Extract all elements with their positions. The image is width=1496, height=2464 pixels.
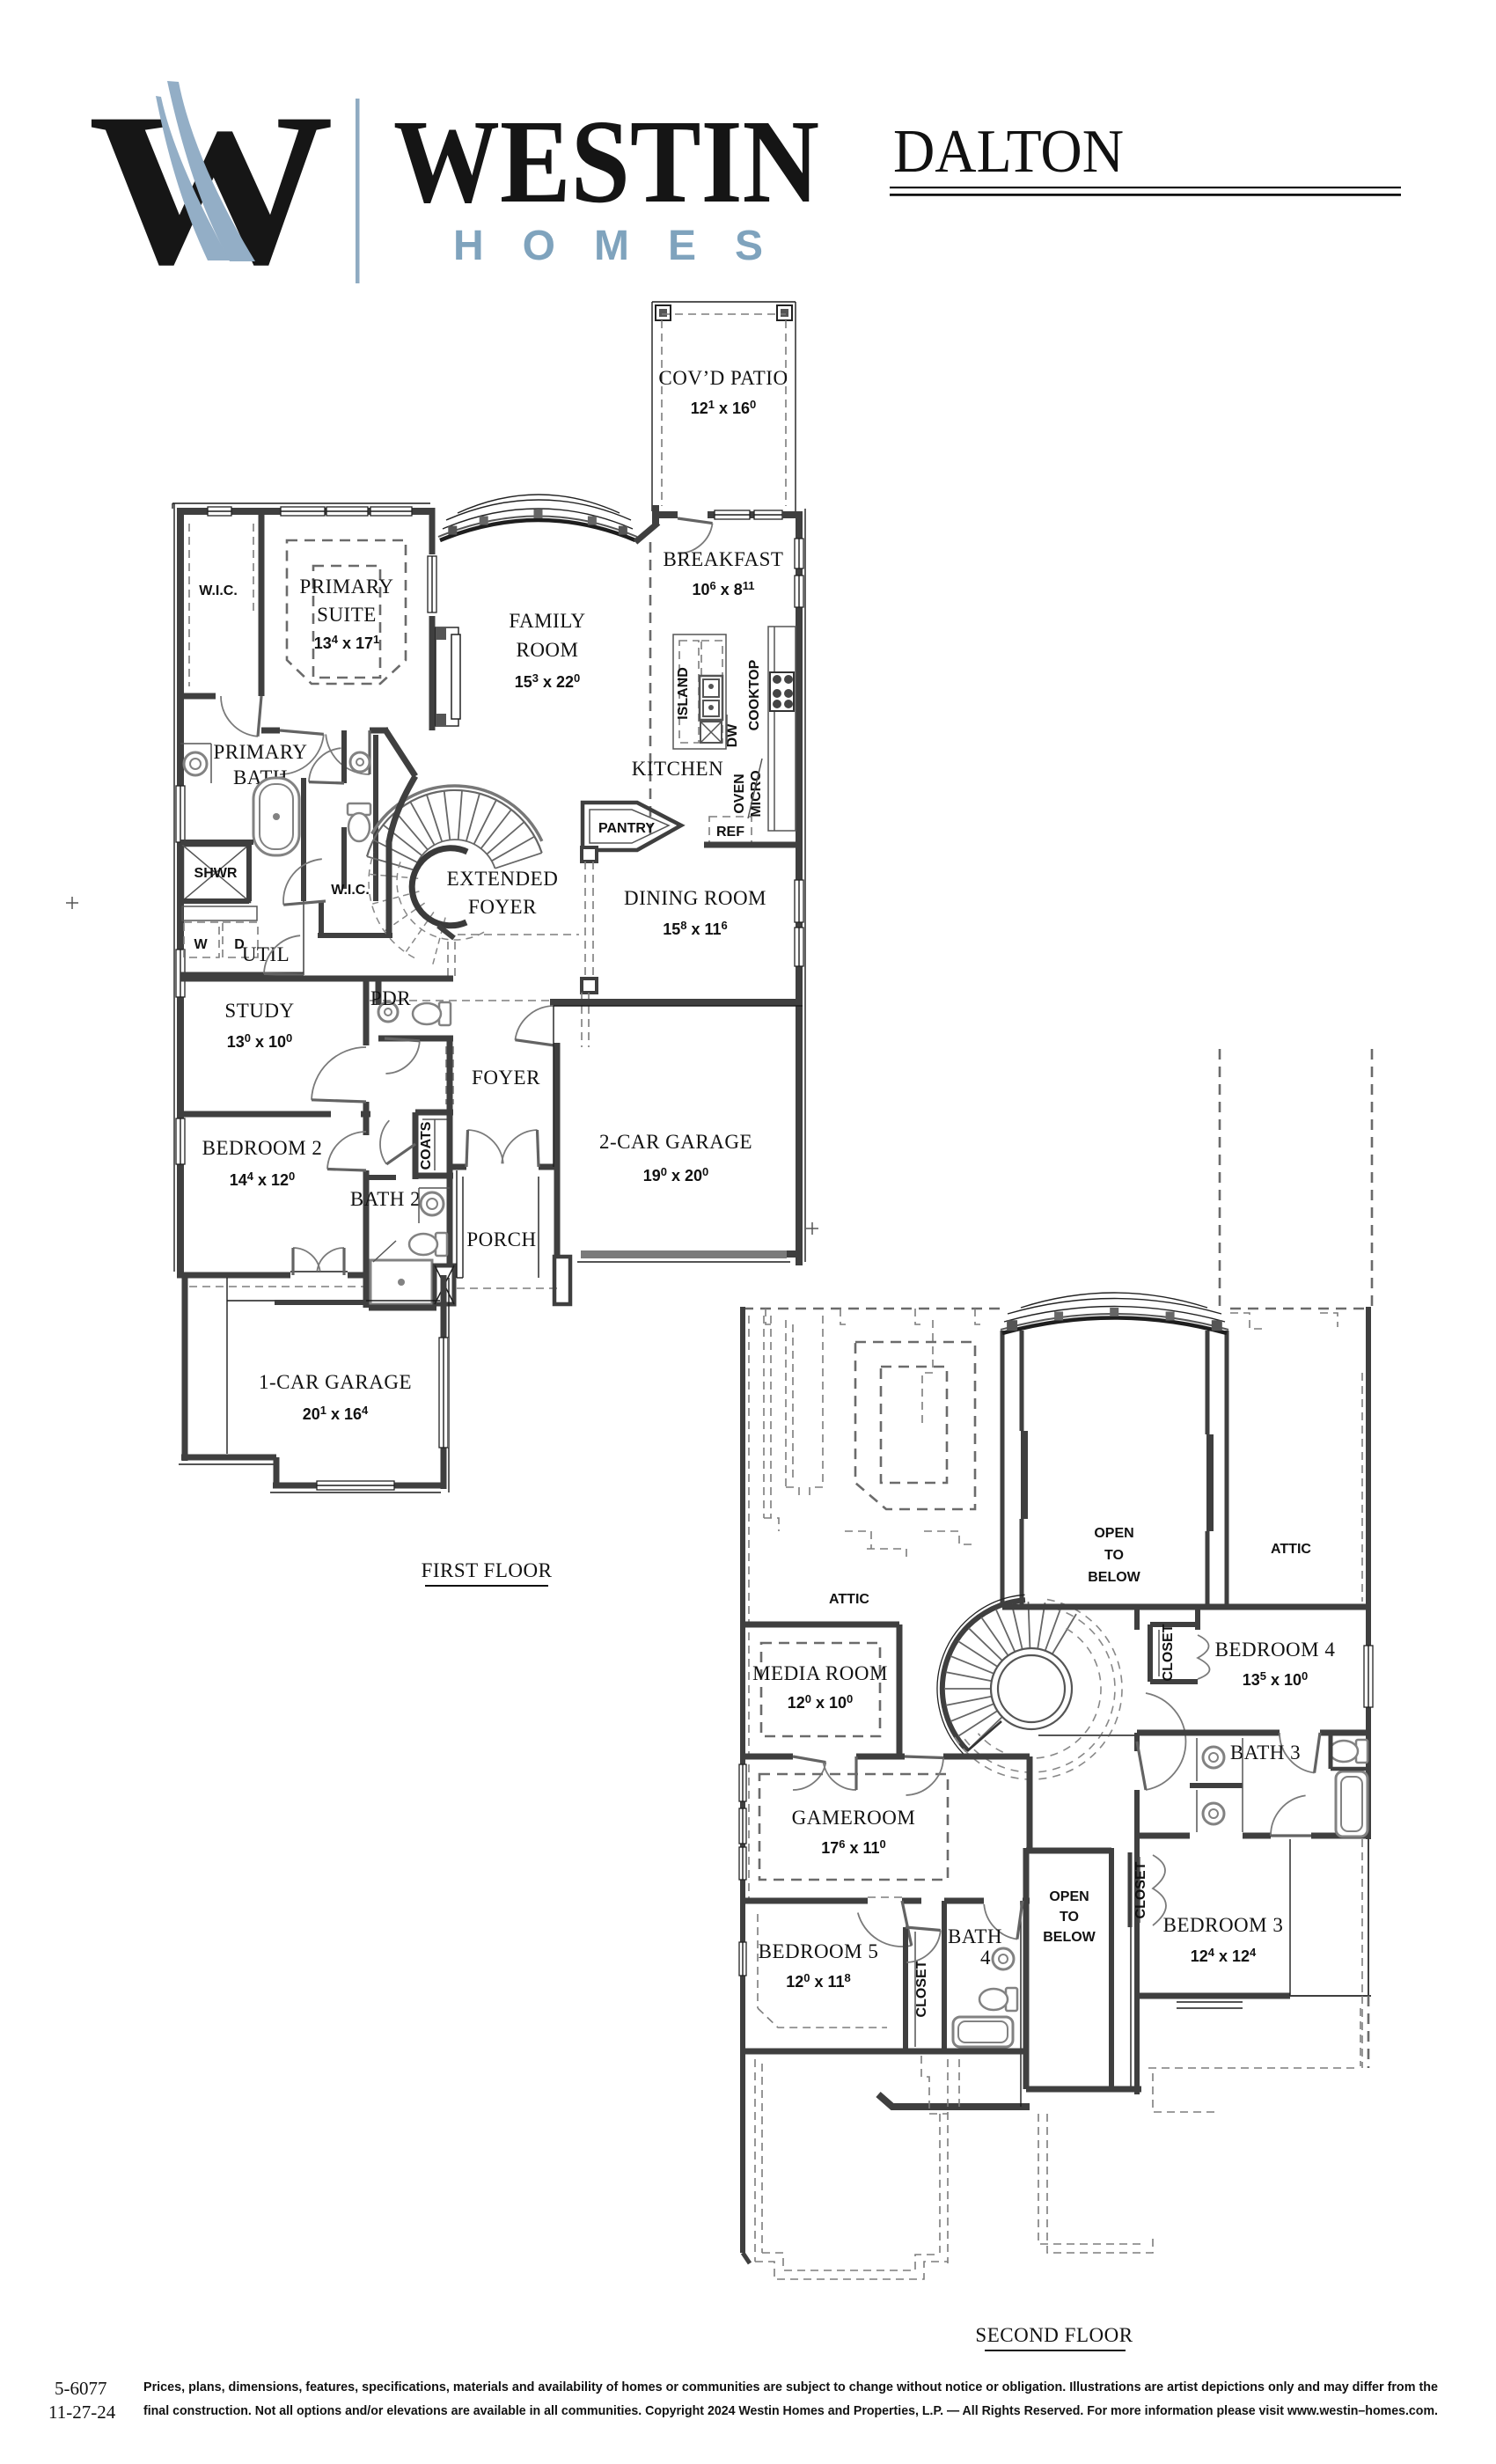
svg-text:1-CAR GARAGE: 1-CAR GARAGE bbox=[259, 1371, 412, 1393]
svg-text:EXTENDED: EXTENDED bbox=[447, 868, 559, 890]
svg-text:176 x 110: 176 x 110 bbox=[821, 1837, 886, 1857]
svg-text:CLOSET: CLOSET bbox=[914, 1960, 929, 2017]
svg-text:CLOSET: CLOSET bbox=[1133, 1861, 1148, 1918]
svg-text:SECOND FLOOR: SECOND FLOOR bbox=[975, 2324, 1133, 2346]
svg-text:KITCHEN: KITCHEN bbox=[632, 758, 723, 780]
svg-text:BEDROOM 4: BEDROOM 4 bbox=[1215, 1639, 1336, 1661]
svg-text:5-6077: 5-6077 bbox=[55, 2378, 107, 2399]
svg-text:PDR: PDR bbox=[370, 987, 411, 1009]
svg-text:HOMES: HOMES bbox=[453, 223, 802, 269]
svg-text:final construction. Not all o: final construction. Not all options and/… bbox=[143, 2403, 1438, 2418]
svg-text:COOKTOP: COOKTOP bbox=[747, 659, 762, 730]
svg-text:134 x 171: 134 x 171 bbox=[314, 633, 380, 652]
svg-text:FOYER: FOYER bbox=[468, 896, 537, 918]
svg-text:BATH 2: BATH 2 bbox=[350, 1188, 421, 1210]
svg-text:GAMEROOM: GAMEROOM bbox=[792, 1807, 916, 1829]
svg-text:BREAKFAST: BREAKFAST bbox=[664, 548, 784, 570]
svg-text:DALTON: DALTON bbox=[893, 118, 1124, 186]
svg-text:PRIMARY: PRIMARY bbox=[213, 741, 307, 763]
svg-text:FIRST FLOOR: FIRST FLOOR bbox=[422, 1559, 553, 1581]
svg-text:PANTRY: PANTRY bbox=[598, 821, 655, 836]
svg-text:158 x 116: 158 x 116 bbox=[663, 919, 728, 938]
svg-text:BEDROOM 5: BEDROOM 5 bbox=[759, 1940, 879, 1962]
svg-text:FAMILY: FAMILY bbox=[509, 610, 585, 632]
svg-text:ISLAND: ISLAND bbox=[676, 667, 691, 720]
svg-text:W.I.C.: W.I.C. bbox=[331, 883, 370, 898]
svg-text:BELOW: BELOW bbox=[1088, 1570, 1140, 1585]
svg-text:BATH 3: BATH 3 bbox=[1230, 1742, 1301, 1764]
svg-text:4: 4 bbox=[980, 1947, 991, 1969]
svg-text:124 x 124: 124 x 124 bbox=[1191, 1946, 1257, 1965]
svg-text:144 x 120: 144 x 120 bbox=[230, 1170, 296, 1189]
svg-text:BELOW: BELOW bbox=[1043, 1930, 1096, 1945]
svg-text:135 x 100: 135 x 100 bbox=[1243, 1669, 1309, 1689]
svg-text:BEDROOM 3: BEDROOM 3 bbox=[1163, 1914, 1284, 1936]
svg-text:PORCH: PORCH bbox=[466, 1228, 536, 1250]
svg-text:COATS: COATS bbox=[419, 1121, 434, 1170]
svg-text:120 x 118: 120 x 118 bbox=[786, 1971, 851, 1991]
svg-text:Prices, plans, dimensions, fea: Prices, plans, dimensions, features, spe… bbox=[143, 2380, 1438, 2394]
svg-text:153 x 220: 153 x 220 bbox=[515, 671, 581, 691]
svg-text:ATTIC: ATTIC bbox=[1271, 1542, 1311, 1557]
svg-text:TO: TO bbox=[1060, 1910, 1079, 1925]
svg-text:PRIMARY: PRIMARY bbox=[299, 576, 393, 598]
svg-text:11-27-24: 11-27-24 bbox=[48, 2402, 116, 2423]
svg-text:TO: TO bbox=[1104, 1548, 1124, 1563]
svg-text:ATTIC: ATTIC bbox=[829, 1592, 869, 1607]
svg-text:SHWR: SHWR bbox=[194, 866, 238, 881]
svg-text:OPEN: OPEN bbox=[1094, 1526, 1133, 1541]
svg-text:201 x 164: 201 x 164 bbox=[303, 1404, 369, 1423]
svg-text:DINING ROOM: DINING ROOM bbox=[624, 887, 766, 909]
svg-text:MEDIA ROOM: MEDIA ROOM bbox=[752, 1662, 888, 1684]
svg-text:OVEN: OVEN bbox=[732, 774, 747, 813]
svg-text:121 x 160: 121 x 160 bbox=[691, 398, 757, 417]
svg-text:SUITE: SUITE bbox=[317, 604, 377, 626]
svg-text:MICRO: MICRO bbox=[749, 770, 764, 817]
svg-text:CLOSET: CLOSET bbox=[1161, 1624, 1176, 1681]
svg-text:OPEN: OPEN bbox=[1049, 1889, 1089, 1904]
svg-text:W: W bbox=[194, 937, 208, 952]
svg-text:FOYER: FOYER bbox=[472, 1067, 540, 1089]
svg-text:REF: REF bbox=[716, 825, 744, 840]
svg-text:BEDROOM 2: BEDROOM 2 bbox=[202, 1137, 323, 1159]
svg-text:2-CAR GARAGE: 2-CAR GARAGE bbox=[599, 1131, 752, 1153]
svg-text:WESTIN: WESTIN bbox=[393, 96, 819, 228]
svg-text:130 x 100: 130 x 100 bbox=[227, 1031, 293, 1051]
svg-text:W.I.C.: W.I.C. bbox=[199, 583, 238, 598]
svg-text:COV’D PATIO: COV’D PATIO bbox=[658, 367, 788, 389]
svg-text:STUDY: STUDY bbox=[224, 1000, 294, 1022]
svg-text:120 x 100: 120 x 100 bbox=[788, 1692, 854, 1712]
svg-text:BATH: BATH bbox=[948, 1925, 1002, 1947]
svg-text:ROOM: ROOM bbox=[516, 639, 578, 661]
svg-text:190 x 200: 190 x 200 bbox=[643, 1165, 709, 1184]
